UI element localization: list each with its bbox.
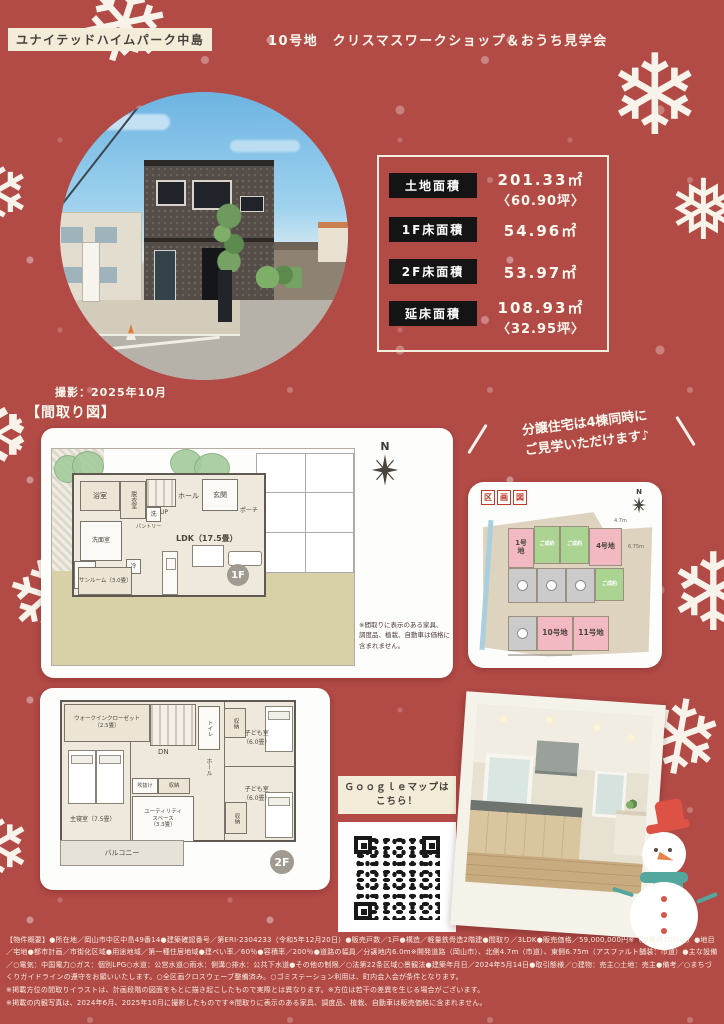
banner-slash <box>467 424 488 454</box>
floor-badge-2f: 2F <box>270 850 294 874</box>
lot-gray <box>566 568 595 603</box>
page-title: 10号地 クリスマスワークショップ＆おうち見学会 <box>268 30 608 49</box>
label-ldk: LDK（17.5畳） <box>176 533 238 544</box>
range-hood <box>535 740 579 776</box>
lot-4: 4号地 <box>589 528 622 566</box>
viewing-banner: 分譲住宅は4棟同時に ご見学いただけます♪ <box>470 408 700 474</box>
closet-mid: 収納 <box>158 778 190 794</box>
snowflake-icon: ❄ <box>668 540 724 648</box>
room-label: 主寝室（7.5畳） <box>70 814 116 823</box>
snowflake-icon: ❅ <box>668 168 724 252</box>
window <box>95 227 117 243</box>
grid-line <box>305 454 306 572</box>
arm <box>696 892 718 904</box>
sidewalk <box>60 300 240 336</box>
room-label-line: （6.0畳） <box>243 793 271 802</box>
floorplan-heading: 【間取り図】 <box>26 402 116 422</box>
flyer-page: ❄ ❄ ❅ ❄ ❆ ❄ ❄ ❄ ❄ ユナイテッドハイムパーク中島 10号地 クリ… <box>0 0 724 1024</box>
lot-map-title: 区 画 図 <box>481 490 527 505</box>
far-house <box>318 222 348 262</box>
label-pantry: パントリー <box>136 523 161 530</box>
button <box>661 896 667 902</box>
value-text: 54.96㎡ <box>481 220 601 241</box>
stairs-2f <box>150 704 196 746</box>
lot-label: 1号地 <box>514 540 528 555</box>
title-char: 区 <box>481 490 495 505</box>
eye <box>654 848 658 852</box>
kitchen-counter <box>162 551 178 595</box>
photo-date-note: 撮影：2025年10月 <box>55 384 167 400</box>
value-text: 201.33㎡ <box>481 169 601 190</box>
gmap-line2: こちら！ <box>376 795 418 809</box>
dining-table-icon <box>192 545 224 567</box>
lot-1: 1号地 <box>508 528 534 568</box>
compass-n: N <box>367 440 403 453</box>
room-label: サンルーム（3.0畳） <box>79 578 131 585</box>
badge-text: 1F <box>231 570 245 581</box>
bed-icon <box>68 750 96 804</box>
circle-mark-icon <box>546 580 557 591</box>
room-kids2: 子ども室 （6.0畳） 収納 <box>224 766 295 840</box>
area-row-label: 1F床面積 <box>389 217 477 242</box>
room-label: トイレ <box>206 720 213 737</box>
snowman-hat <box>654 798 685 826</box>
area-table: 土地面積 201.33㎡ 〈60.90坪〉 1F床面積 54.96㎡ 2F床面積… <box>377 155 609 352</box>
room-label: 脱衣室 <box>129 491 137 509</box>
room-label: 子ども室 （6.0畳） <box>243 784 271 802</box>
note-line: 含まれません。 <box>359 641 450 651</box>
compass-rose <box>370 453 400 487</box>
room-label-line: 子ども室 <box>243 728 271 737</box>
room-label: ウォークインクローゼット <box>74 716 140 723</box>
label-text: 1F床面積 <box>402 221 465 238</box>
neighbor-plan <box>256 453 354 573</box>
title-char: 画 <box>497 490 511 505</box>
disclaimer-1: ※掲載方位の間取りイラストは、計画段階の図面をもとに描き起こしたもので実際とは異… <box>6 984 718 996</box>
room-utility: ユーティリティ スペース （3.3畳） <box>132 796 194 842</box>
building-2f: ウォークインクローゼット （2.5畳） DN トイレ 収納 子ども室 （6.0畳… <box>60 700 296 842</box>
label-text: 延床面積 <box>405 305 461 322</box>
void-area: 吹抜け <box>132 778 158 794</box>
area-row-value: 53.97㎡ <box>481 262 601 283</box>
qr-code <box>354 836 440 920</box>
cloud <box>230 140 300 152</box>
washer: 洗 <box>146 507 161 522</box>
room-label: 浴室 <box>93 492 107 501</box>
room-label: 子ども室 （6.0畳） <box>243 728 271 746</box>
room-entrance: 玄関 <box>202 479 238 511</box>
note-line: ※間取りに表示のある家具、 <box>359 620 450 630</box>
lot-label: 10号地 <box>542 629 567 637</box>
label-hall: ホール <box>178 491 199 501</box>
compass-icon: N <box>367 440 403 492</box>
room-lavatory: 洗面室 <box>80 521 122 561</box>
note-line: 調度品、植栽、自動車は価格に <box>359 630 450 640</box>
snowflake-icon: ❄ <box>0 802 33 896</box>
room-label: 洗面室 <box>92 537 110 545</box>
button <box>661 912 667 918</box>
qr-finder <box>422 836 440 854</box>
lot-label: 4号地 <box>596 543 615 551</box>
lot-label: ご成約 <box>567 542 582 548</box>
compass-icon: N <box>628 488 650 518</box>
room-bath: 浴室 <box>80 481 120 511</box>
lot-label: ご成約 <box>539 542 554 548</box>
lot-sold: ご成約 <box>595 568 624 601</box>
header-brand: ユナイテッドハイムパーク中島 <box>8 28 212 51</box>
area-row-value: 54.96㎡ <box>481 220 601 241</box>
lot-sold: ご成約 <box>534 526 560 564</box>
banner-text: 分譲住宅は4棟同時に ご見学いただけます♪ <box>492 403 680 465</box>
plan-note: ※間取りに表示のある家具、 調度品、植栽、自動車は価格に 含まれません。 <box>359 620 450 651</box>
room-toilet-2f: トイレ <box>198 706 220 750</box>
label-hall-2f: ホール <box>204 758 213 776</box>
room-label: 収納 <box>233 813 240 824</box>
floor-badge-1f: 1F <box>227 564 249 586</box>
dim-east: 6.75m <box>628 544 644 550</box>
qr-card <box>338 822 456 932</box>
lot-gray <box>508 568 537 603</box>
badge-text: 2F <box>274 856 289 869</box>
snowman-head <box>642 832 686 876</box>
room-wic: ウォークインクローゼット （2.5畳） <box>64 704 150 742</box>
site-outline: 浴室 脱衣室 洗 UP パントリー ホール 玄関 ポーチ LDK（17.5畳） … <box>51 448 355 666</box>
mailbox-post <box>218 270 232 322</box>
qr-finder <box>354 902 372 920</box>
label-porch: ポーチ <box>240 505 258 514</box>
sink <box>166 558 176 570</box>
room-bedroom: 主寝室（7.5畳） <box>62 742 131 840</box>
room-label: 洗 <box>150 511 156 519</box>
window <box>61 227 83 243</box>
snowflake-icon: ❄ <box>608 40 702 152</box>
tree <box>212 202 246 272</box>
balcony: バルコニー <box>60 840 184 866</box>
snowflake-icon: ❆ <box>0 398 29 476</box>
title-char: 図 <box>513 490 527 505</box>
eye <box>668 848 672 852</box>
lot-gray <box>508 616 537 651</box>
room-label: 収納 <box>168 783 179 790</box>
area-row-label: 延床面積 <box>389 301 477 326</box>
circle-mark-icon <box>517 580 528 591</box>
label-dn: DN <box>158 748 169 756</box>
lot-sold: ご成約 <box>560 526 589 564</box>
value-text: 108.93㎡ <box>481 297 601 318</box>
main-house <box>144 160 274 316</box>
stairs-1f <box>146 479 176 507</box>
lot-label: 11号地 <box>578 629 603 637</box>
exterior-photo <box>60 92 348 380</box>
label-up: UP <box>160 509 168 516</box>
floorplan-2f-card: ウォークインクローゼット （2.5畳） DN トイレ 収納 子ども室 （6.0畳… <box>40 688 330 890</box>
closet-bottom: 収納 <box>225 802 247 834</box>
sub-text: 〈60.90坪〉 <box>481 190 601 209</box>
floor-band <box>144 238 274 242</box>
window <box>156 180 186 206</box>
room-label-line: 子ども室 <box>243 784 271 793</box>
room-label-line: （6.0畳） <box>243 737 271 746</box>
area-row-value: 108.93㎡ 〈32.95坪〉 <box>481 297 601 337</box>
lot-11: 11号地 <box>573 616 609 651</box>
banner-flag <box>82 242 100 302</box>
sub-text: 〈32.95坪〉 <box>481 318 601 337</box>
room-label: （2.5畳） <box>94 723 119 730</box>
circle-mark-icon <box>517 628 528 639</box>
neighbor-building <box>60 212 142 306</box>
room-label: 玄関 <box>213 491 227 500</box>
room-sunroom: サンルーム（3.0畳） <box>78 567 132 595</box>
dim-north: 4.7m <box>614 518 627 524</box>
room-label: ユーティリティ <box>144 809 182 816</box>
area-row-label: 土地面積 <box>389 173 477 198</box>
disclaimer-2: ※掲載の内観写真は、2024年6月、2025年10月に撮影したものです※間取りに… <box>6 997 718 1009</box>
bed-icon <box>96 750 124 804</box>
room-kids1: 子ども室 （6.0畳） <box>224 702 295 767</box>
gmap-line1: Ｇｏｏｇｌｅマップは <box>344 781 449 795</box>
floorplan-1f-card: 浴室 脱衣室 洗 UP パントリー ホール 玄関 ポーチ LDK（17.5畳） … <box>41 428 453 678</box>
snowflake-icon: ❄ <box>0 150 32 238</box>
room-label: （3.3畳） <box>150 822 175 829</box>
lot-10: 10号地 <box>537 616 573 651</box>
lot-label: ご成約 <box>602 582 617 588</box>
lot-map-card: 区 画 図 N 1号地 ご成約 ご成約 4号地 ご成約 10号地 11号地 4.… <box>468 482 662 668</box>
map-caption <box>508 654 572 656</box>
brand-label: ユナイテッドハイムパーク中島 <box>16 31 204 48</box>
window <box>61 267 83 283</box>
room-label: バルコニー <box>105 848 140 858</box>
circle-mark-icon <box>575 580 586 591</box>
area-row-value: 201.33㎡ 〈60.90坪〉 <box>481 169 601 209</box>
area-row-label: 2F床面積 <box>389 259 477 284</box>
shrubs <box>256 262 302 288</box>
lot-gray <box>537 568 566 603</box>
label-text: 2F床面積 <box>402 263 465 280</box>
value-text: 53.97㎡ <box>481 262 601 283</box>
gmap-label: Ｇｏｏｇｌｅマップは こちら！ <box>338 776 456 814</box>
room-dressing: 脱衣室 <box>120 481 146 519</box>
arm <box>612 887 634 898</box>
carrot-nose <box>657 852 675 865</box>
compass-n: N <box>628 488 650 496</box>
label-text: 土地面積 <box>405 177 461 194</box>
room-label: 吹抜け <box>137 783 152 789</box>
plant <box>622 799 637 812</box>
property-overview: 【物件概要】●所在地／岡山市中区中島49番14●建築確認番号／第ERI-2304… <box>6 934 718 983</box>
compass-rose <box>631 496 647 514</box>
qr-finder <box>354 836 372 854</box>
